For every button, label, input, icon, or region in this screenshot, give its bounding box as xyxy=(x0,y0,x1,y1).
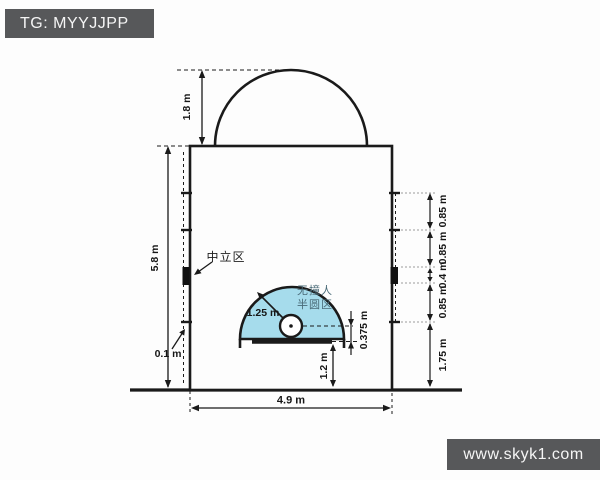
free-throw-semicircle xyxy=(215,70,367,146)
label-backboard-to-baseline: 1.2 m xyxy=(319,353,330,380)
label-no-charge-zone-line2: 半圆区 xyxy=(297,299,333,313)
label-neutral-zone: 中立区 xyxy=(206,251,245,263)
label-chain-2: 0.4 m xyxy=(438,262,449,289)
right-dim-leaders xyxy=(401,193,437,322)
lane-rectangle xyxy=(190,146,392,390)
ring-center-dot xyxy=(289,324,293,328)
arrowhead xyxy=(191,405,199,411)
left-neutral-zone-block xyxy=(183,267,190,285)
label-no-charge-zone-line1: 无撞人 xyxy=(297,285,333,299)
diagram-canvas: 1.8 m 5.8 m 0.85 m 0.85 m 0.4 m 0.85 m 1… xyxy=(0,0,600,480)
label-hash-mark-length: 0.1 m xyxy=(155,349,182,360)
label-ring-to-backboard: 0.375 m xyxy=(359,311,370,350)
label-lane-width: 4.9 m xyxy=(274,396,308,407)
right-neutral-zone-block xyxy=(391,267,399,284)
label-no-charge-radius: 1.25 m xyxy=(247,308,280,319)
arrowhead xyxy=(199,137,205,145)
label-chain-4: 1.75 m xyxy=(438,339,449,372)
label-chain-0: 0.85 m xyxy=(438,195,449,228)
label-lane-height: 5.8 m xyxy=(150,245,161,272)
label-chain-1: 0.85 m xyxy=(438,232,449,265)
arrowhead xyxy=(165,380,171,388)
watermark-site: www.skyk1.com xyxy=(447,439,600,470)
arrowhead xyxy=(383,405,391,411)
court-diagram xyxy=(0,0,600,480)
arrowhead xyxy=(165,146,171,154)
watermark-tag: TG: MYYJJPP xyxy=(5,9,154,38)
arrowhead xyxy=(199,70,205,78)
label-chain-3: 0.85 m xyxy=(438,286,449,319)
label-semicircle-radius: 1.8 m xyxy=(182,94,193,121)
